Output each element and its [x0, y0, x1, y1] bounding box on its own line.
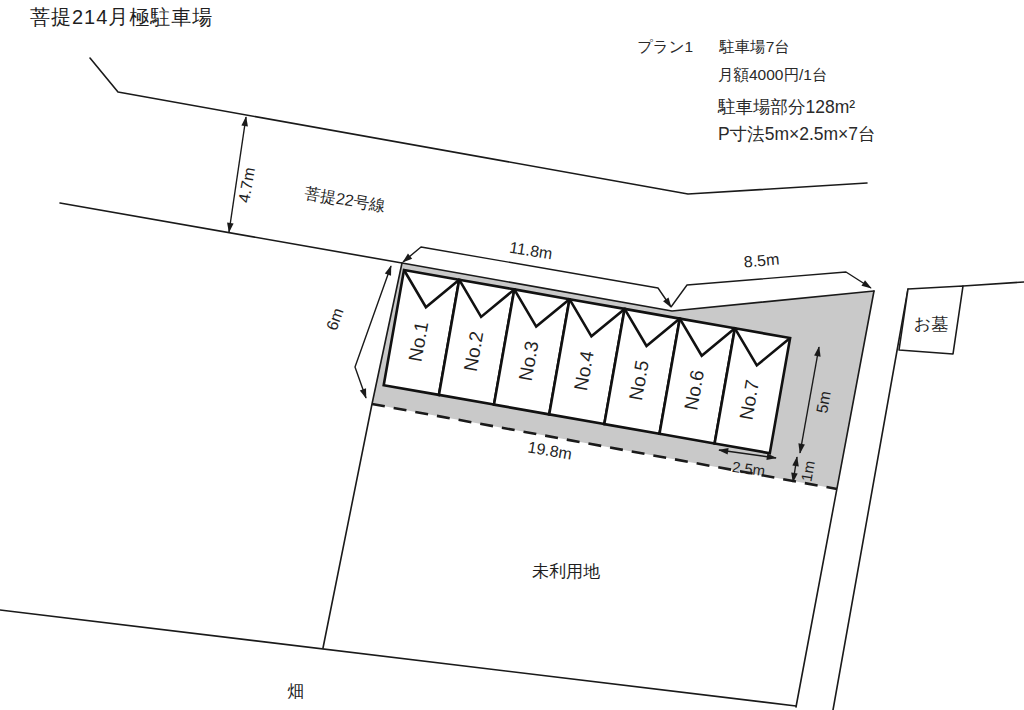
grave-boundary-extension	[963, 282, 1024, 286]
grave-label: お墓	[914, 315, 948, 334]
plan-monthly-fee: 月額4000円/1台	[718, 65, 876, 86]
bottom-dim-label: 19.8m	[527, 439, 574, 463]
plan-capacity: 駐車場7台	[719, 37, 790, 58]
rear-margin-dim-label: 1m	[797, 459, 817, 482]
field-boundary	[0, 610, 796, 706]
front-right-dim-label: 8.5m	[743, 251, 780, 271]
road-name-label: 菩提22号線	[303, 184, 386, 214]
page-title: 菩提214月極駐車場	[30, 4, 213, 31]
plan-label: プラン1	[637, 37, 693, 58]
plan-parking-area: 駐車場部分128m²	[718, 95, 876, 119]
stall-width-dim-label: 2.5m	[731, 458, 766, 479]
plan-stall-size: P寸法5m×2.5m×7台	[718, 122, 876, 146]
site-plan-canvas: No.1 No.2 No.3 No.4 No.5 No.6 No.7 菩提22号…	[0, 0, 1024, 710]
unused-land-label: 未利用地	[532, 562, 600, 581]
left-side-dim-label: 6m	[323, 306, 347, 333]
field-label: 畑	[288, 682, 305, 701]
plan-info-block: プラン1 駐車場7台 月額4000円/1台 駐車場部分128m² P寸法5m×2…	[637, 37, 876, 146]
front-left-dim-label: 11.8m	[508, 239, 553, 263]
road-lower-edge	[60, 203, 402, 263]
